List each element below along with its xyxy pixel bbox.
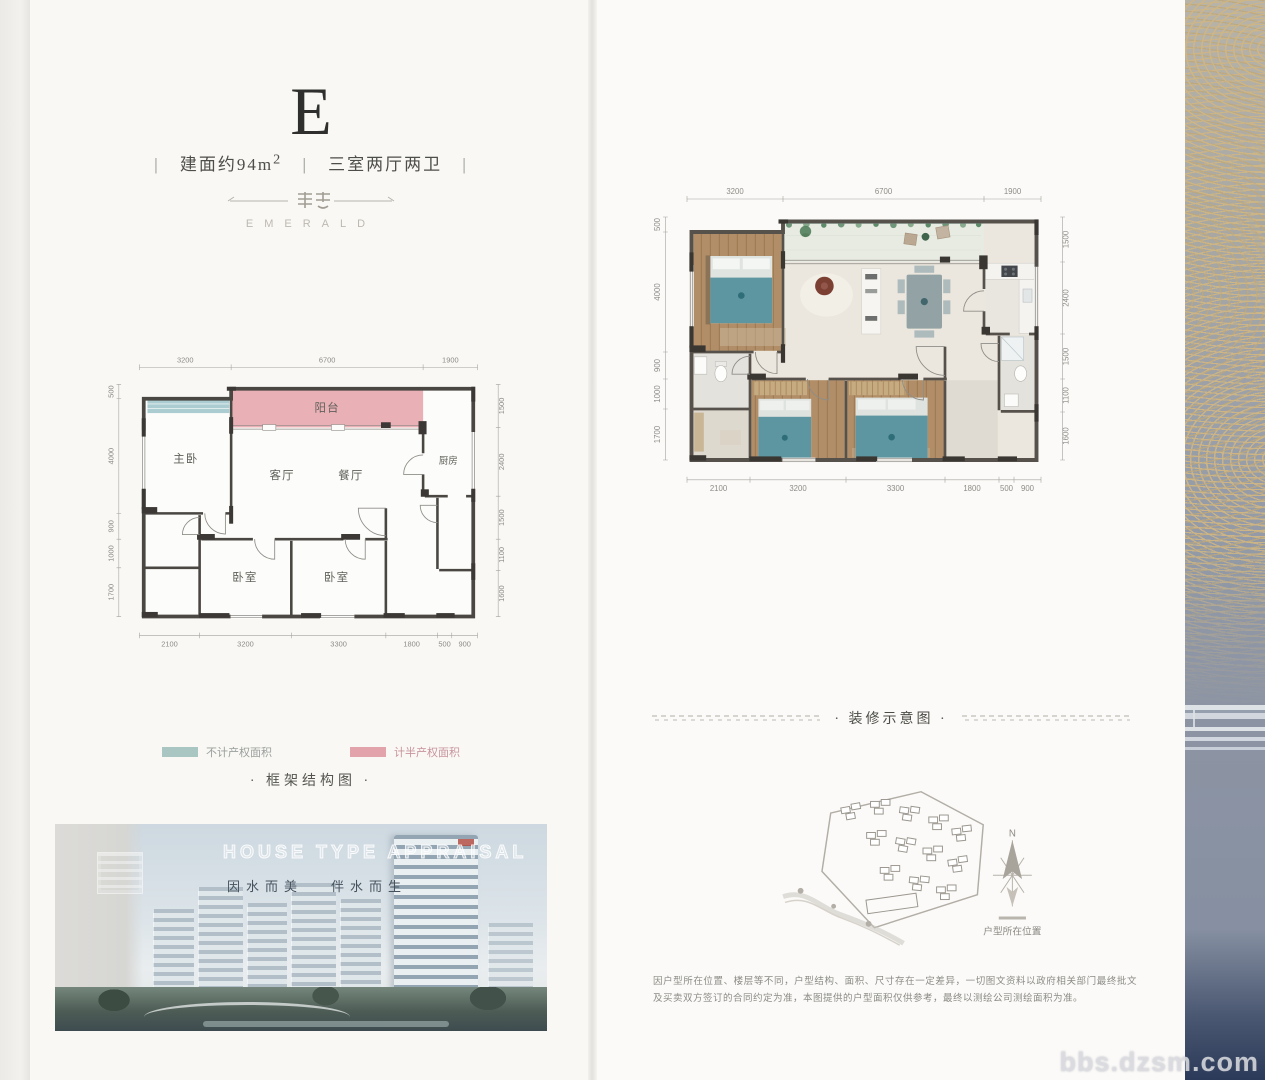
brand-name: EMERALD bbox=[30, 218, 592, 230]
dimensions-bottom: 2100 3200 3300 1800 500 900 bbox=[687, 477, 1041, 493]
dim-label: 500 bbox=[1000, 484, 1014, 493]
north-label: N bbox=[1009, 828, 1016, 839]
dim-label: 1600 bbox=[1062, 427, 1071, 445]
dim-label: 500 bbox=[653, 217, 662, 231]
dim-label: 1900 bbox=[1004, 187, 1022, 196]
area-label: 建面约94m2 bbox=[180, 155, 282, 174]
photo-title: HOUSE TYPE APPRAISAL bbox=[223, 842, 527, 863]
legend-label: 不计产权面积 bbox=[206, 744, 272, 760]
decorated-plan: 3200 6700 1900 2100 3200 3300 1800 500 9… bbox=[630, 160, 1098, 508]
dim-label: 1500 bbox=[497, 398, 506, 415]
dim-label: 3200 bbox=[726, 187, 744, 196]
wave-ornament bbox=[652, 714, 820, 722]
topographic-contours bbox=[1185, 0, 1265, 820]
spec-separator: | bbox=[462, 155, 467, 174]
decor-plan-header: · 装修示意图 · bbox=[597, 708, 1185, 728]
frame-plan-svg: 主卧 阳台 客厅 餐厅 厨房 卧室 卧室 3200 6700 1900 bbox=[85, 330, 532, 662]
plan-legend: 不计产权面积 计半产权面积 bbox=[30, 744, 592, 760]
dimensions-bottom: 2100 3200 3300 1800 500 900 bbox=[139, 633, 477, 649]
location-legend: 户型所在位置 bbox=[983, 918, 1042, 938]
decor-plan-svg: 3200 6700 1900 2100 3200 3300 1800 500 9… bbox=[630, 160, 1098, 508]
dimensions-left: 500 4000 900 1000 1700 bbox=[107, 384, 121, 616]
dimensions-top: 3200 6700 1900 bbox=[139, 356, 477, 370]
layout-label: 三室两厅两卫 bbox=[328, 155, 442, 174]
dim-label: 1700 bbox=[107, 584, 116, 601]
dim-label: 6700 bbox=[319, 356, 336, 365]
left-page: E | 建面约94m2 | 三室两厅两卫 | EMERALD bbox=[30, 0, 592, 1080]
site-buildings bbox=[840, 799, 972, 913]
legend-item-nonproperty: 不计产权面积 bbox=[162, 744, 272, 760]
dim-label: 1500 bbox=[497, 509, 506, 526]
room-label-balcony: 阳台 bbox=[315, 400, 340, 414]
dim-label: 1100 bbox=[1062, 386, 1071, 403]
dim-label: 3300 bbox=[330, 639, 347, 648]
unit-specs: | 建面约94m2 | 三室两厅两卫 | bbox=[30, 150, 592, 175]
building bbox=[291, 883, 336, 987]
left-page-edge bbox=[0, 0, 30, 1080]
dim-label: 900 bbox=[653, 358, 662, 372]
room-label-dining: 餐厅 bbox=[338, 468, 363, 482]
spec-separator: | bbox=[154, 155, 159, 174]
dim-label: 4000 bbox=[107, 448, 116, 465]
dim-label: 1600 bbox=[497, 585, 506, 602]
spec-separator: | bbox=[302, 155, 307, 174]
dim-label: 1800 bbox=[403, 639, 420, 648]
frame-plan-title: · 框架结构图 · bbox=[30, 770, 592, 790]
dim-label: 1800 bbox=[963, 484, 981, 493]
brand-logo-mark bbox=[226, 188, 396, 212]
dim-label: 3200 bbox=[789, 484, 807, 493]
dim-label: 1100 bbox=[497, 547, 506, 563]
forum-watermark: bbs.dzsm.com bbox=[1059, 1047, 1259, 1078]
building bbox=[247, 903, 287, 987]
room-label-master: 主卧 bbox=[173, 452, 198, 465]
building bbox=[340, 899, 380, 987]
dim-label: 900 bbox=[107, 520, 116, 532]
room-label-living: 客厅 bbox=[270, 468, 295, 482]
water-reflection bbox=[203, 1021, 449, 1027]
dim-label: 1500 bbox=[1062, 347, 1071, 365]
photo-slogan: 因水而美伴水而生 bbox=[227, 876, 407, 895]
pink-swatch-icon bbox=[350, 747, 386, 757]
decor-plan-title: · 装修示意图 · bbox=[834, 708, 947, 728]
dimensions-left: 500 4000 900 1000 1700 bbox=[653, 217, 668, 460]
photo-logo-icon bbox=[97, 852, 143, 894]
frame-structure-plan: 主卧 阳台 客厅 餐厅 厨房 卧室 卧室 3200 6700 1900 bbox=[85, 330, 532, 662]
dim-label: 900 bbox=[458, 639, 470, 648]
slogan-part: 伴水而生 bbox=[331, 879, 407, 894]
dimensions-top: 3200 6700 1900 bbox=[687, 187, 1041, 202]
site-map-svg: N 户型所在位置 bbox=[777, 782, 1069, 952]
building bbox=[488, 923, 533, 987]
compass-north-icon: N bbox=[993, 828, 1032, 906]
dim-label: 1000 bbox=[653, 385, 662, 403]
room-label-kitchen: 厨房 bbox=[439, 455, 458, 467]
brand-logo bbox=[30, 188, 592, 217]
dim-label: 3200 bbox=[177, 356, 194, 365]
dim-label: 1700 bbox=[653, 425, 662, 443]
room-label-bedroom-a: 卧室 bbox=[232, 570, 257, 584]
teal-swatch-icon bbox=[162, 747, 198, 757]
disclaimer-text: 因户型所在位置、楼层等不同，户型结构、面积、尺寸存在一定差异，一切图文资料以政府… bbox=[653, 974, 1137, 1007]
dim-label: 1000 bbox=[107, 545, 116, 562]
location-label: 户型所在位置 bbox=[983, 925, 1042, 938]
dim-label: 6700 bbox=[875, 187, 893, 196]
legend-label: 计半产权面积 bbox=[394, 744, 460, 760]
right-page: 3200 6700 1900 2100 3200 3300 1800 500 9… bbox=[597, 0, 1185, 1080]
building bbox=[198, 887, 243, 987]
brochure-page: E | 建面约94m2 | 三室两厅两卫 | EMERALD bbox=[0, 0, 1265, 1080]
unit-letter: E bbox=[30, 72, 592, 151]
room-label-bedroom-b: 卧室 bbox=[324, 570, 349, 584]
decorative-art-strip bbox=[1185, 0, 1265, 1080]
dim-label: 2400 bbox=[1062, 289, 1071, 307]
dimensions-right: 1500 2400 1500 1100 1600 bbox=[496, 384, 506, 616]
dim-label: 1900 bbox=[442, 356, 459, 365]
dim-label: 1500 bbox=[1062, 230, 1071, 248]
building bbox=[153, 909, 193, 987]
legend-item-halfproperty: 计半产权面积 bbox=[350, 744, 460, 760]
dim-label: 3200 bbox=[237, 639, 254, 648]
dim-label: 900 bbox=[1021, 484, 1035, 493]
slogan-part: 因水而美 bbox=[227, 879, 303, 894]
dim-label: 2100 bbox=[710, 484, 728, 493]
dim-label: 4000 bbox=[653, 283, 662, 301]
window-band-teal bbox=[147, 399, 229, 413]
area-sup: 2 bbox=[273, 151, 282, 167]
dim-label: 500 bbox=[438, 639, 450, 648]
metallic-key-notch bbox=[1193, 706, 1235, 730]
dim-label: 500 bbox=[107, 385, 116, 397]
river bbox=[783, 888, 903, 945]
page-fold-divider bbox=[588, 0, 597, 1080]
dimensions-right: 1500 2400 1500 1100 1600 bbox=[1060, 217, 1070, 460]
dim-label: 3300 bbox=[887, 484, 905, 493]
appraisal-photo: HOUSE TYPE APPRAISAL 因水而美伴水而生 bbox=[55, 824, 547, 1031]
dim-label: 2400 bbox=[497, 454, 506, 471]
site-map: N 户型所在位置 bbox=[777, 782, 1069, 957]
wave-ornament bbox=[962, 714, 1130, 722]
dim-label: 2100 bbox=[161, 639, 178, 648]
